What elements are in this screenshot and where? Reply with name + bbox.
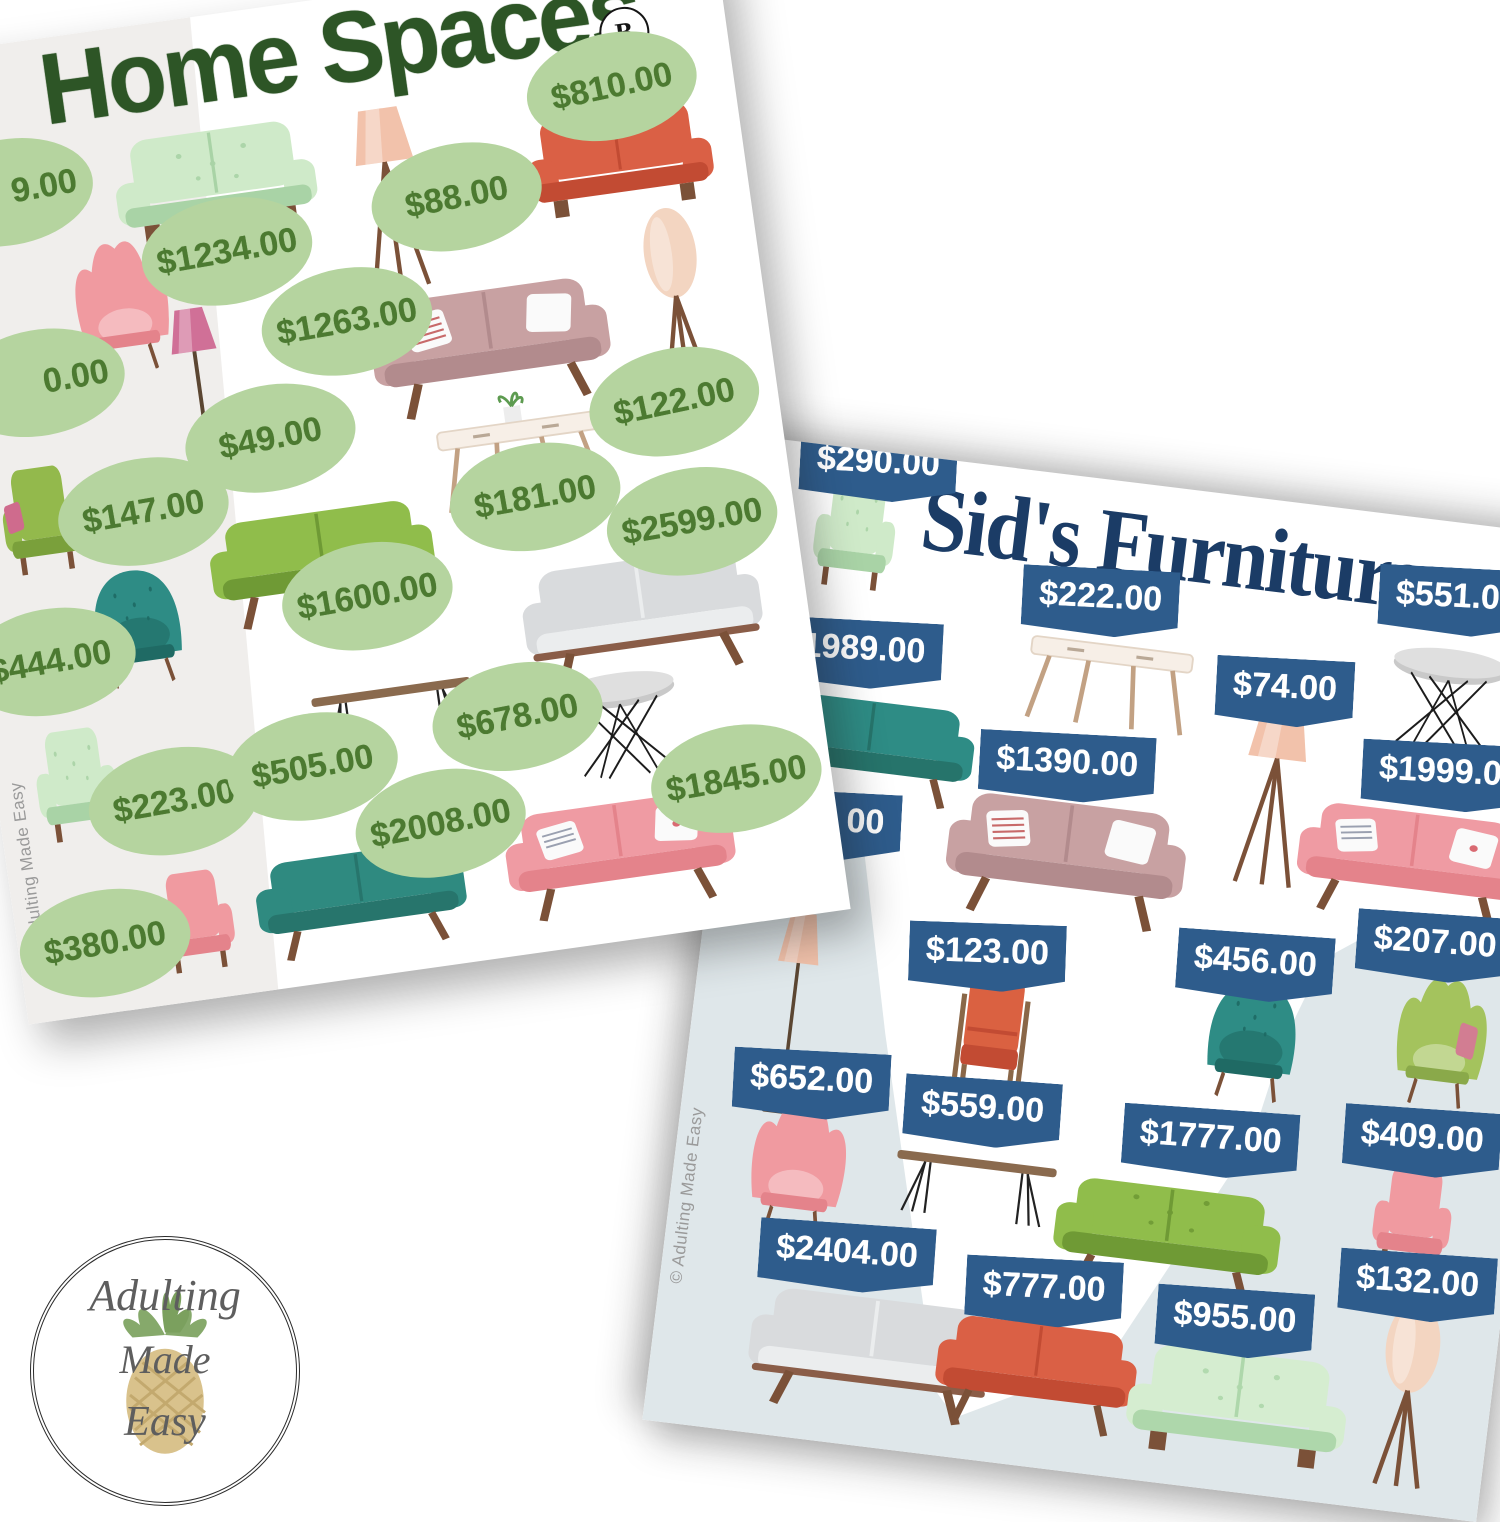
home-spaces-flyer: Home Spaces B © Adulting Made Easy 9.000… — [0, 0, 851, 1025]
furniture-wing-chair-green — [1377, 966, 1500, 1113]
logo-word-made: Made — [34, 1336, 296, 1383]
logo-word-adulting: Adulting — [34, 1270, 296, 1321]
price-tag: $123.00 — [908, 920, 1067, 993]
adulting-made-easy-logo: Adulting Made Easy — [30, 1236, 300, 1506]
logo-word-easy: Easy — [34, 1398, 296, 1446]
